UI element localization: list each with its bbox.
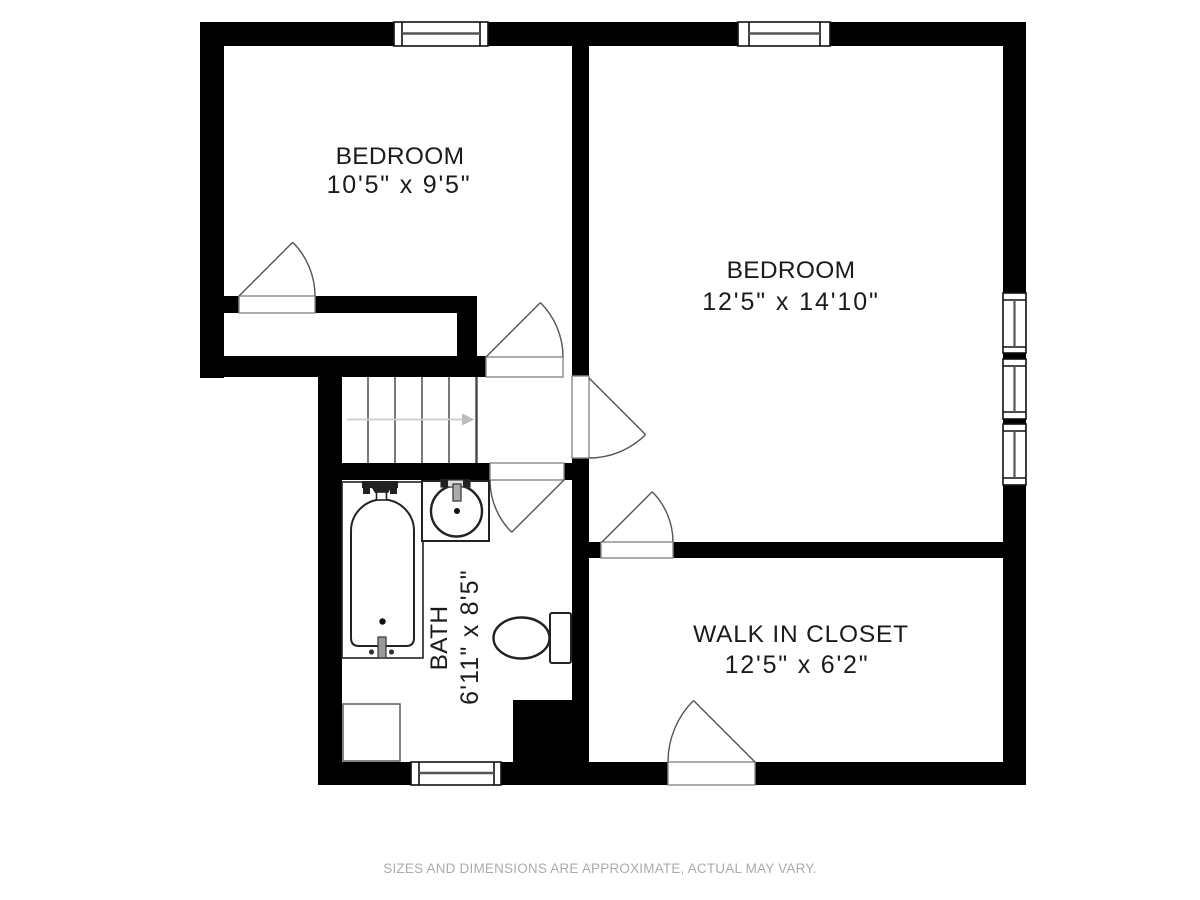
svg-text:SIZES AND DIMENSIONS ARE APPRO: SIZES AND DIMENSIONS ARE APPROXIMATE, AC… (383, 861, 816, 876)
svg-text:BEDROOM: BEDROOM (336, 143, 465, 170)
svg-text:12'5" x 6'2": 12'5" x 6'2" (725, 651, 870, 679)
svg-text:10'5" x 9'5": 10'5" x 9'5" (327, 171, 472, 199)
svg-text:BEDROOM: BEDROOM (727, 257, 856, 284)
svg-text:6'11" x 8'5": 6'11" x 8'5" (456, 569, 484, 705)
svg-text:12'5" x 14'10": 12'5" x 14'10" (702, 288, 880, 316)
svg-text:BATH: BATH (426, 606, 453, 671)
svg-text:WALK IN CLOSET: WALK IN CLOSET (693, 621, 909, 648)
